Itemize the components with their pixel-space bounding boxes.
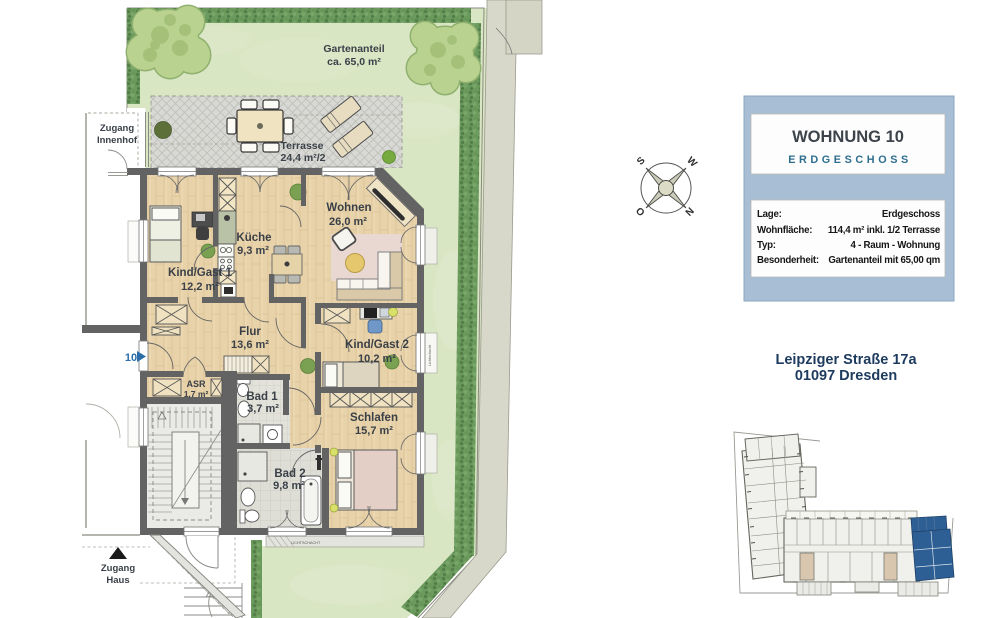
svg-text:Wohnen: Wohnen <box>326 202 371 214</box>
svg-text:Schlafen: Schlafen <box>350 412 398 424</box>
svg-text:Kind/Gast 1: Kind/Gast 1 <box>168 267 233 279</box>
svg-text:Erdgeschoss: Erdgeschoss <box>882 209 940 220</box>
svg-text:ERDGESCHOSS: ERDGESCHOSS <box>788 154 912 166</box>
svg-text:12,2 m²: 12,2 m² <box>181 281 219 293</box>
svg-text:Zugang: Zugang <box>101 563 135 574</box>
svg-text:3,7 m²: 3,7 m² <box>247 403 279 415</box>
svg-text:Gartenanteil: Gartenanteil <box>323 43 384 55</box>
svg-text:LICHTSCHACHT: LICHTSCHACHT <box>291 541 321 545</box>
svg-text:Innenhof: Innenhof <box>97 135 138 146</box>
svg-text:24,4 m²/2: 24,4 m²/2 <box>281 152 326 164</box>
svg-text:13,6 m²: 13,6 m² <box>231 339 269 351</box>
svg-text:4 - Raum - Wohnung: 4 - Raum - Wohnung <box>851 240 941 251</box>
svg-text:01097 Dresden: 01097 Dresden <box>795 368 897 384</box>
svg-text:9,8 m²: 9,8 m² <box>273 480 305 492</box>
svg-text:Bad 1: Bad 1 <box>246 391 278 403</box>
svg-text:Lage:: Lage: <box>757 209 782 220</box>
svg-text:Leipziger Straße 17a: Leipziger Straße 17a <box>775 352 917 368</box>
svg-text:10: 10 <box>125 352 137 364</box>
svg-text:Flur: Flur <box>239 326 261 338</box>
svg-text:1,7 m²: 1,7 m² <box>184 389 209 399</box>
svg-text:Haus: Haus <box>106 575 129 586</box>
svg-text:15,7 m²: 15,7 m² <box>355 425 393 437</box>
svg-text:10,2 m²: 10,2 m² <box>358 353 396 365</box>
svg-text:Kind/Gast 2: Kind/Gast 2 <box>345 339 409 351</box>
svg-text:Lichtschacht: Lichtschacht <box>428 344 432 366</box>
svg-text:WOHNUNG 10: WOHNUNG 10 <box>792 128 904 146</box>
svg-text:ASR: ASR <box>186 379 206 389</box>
svg-text:Gartenanteil mit 65,00 qm: Gartenanteil mit 65,00 qm <box>828 255 940 266</box>
svg-text:ca. 65,0 m²: ca. 65,0 m² <box>327 56 381 68</box>
svg-text:Typ:: Typ: <box>757 240 776 251</box>
svg-text:Zugang: Zugang <box>100 123 134 134</box>
svg-text:114,4 m² inkl. 1/2 Terrasse: 114,4 m² inkl. 1/2 Terrasse <box>828 225 941 236</box>
svg-text:9,3 m²: 9,3 m² <box>237 245 269 257</box>
svg-text:Besonderheit:: Besonderheit: <box>757 255 819 266</box>
svg-text:Bad 2: Bad 2 <box>274 468 305 480</box>
svg-text:Küche: Küche <box>236 232 271 244</box>
svg-text:Wohnfläche:: Wohnfläche: <box>757 225 812 236</box>
svg-text:Terrasse: Terrasse <box>280 140 323 152</box>
